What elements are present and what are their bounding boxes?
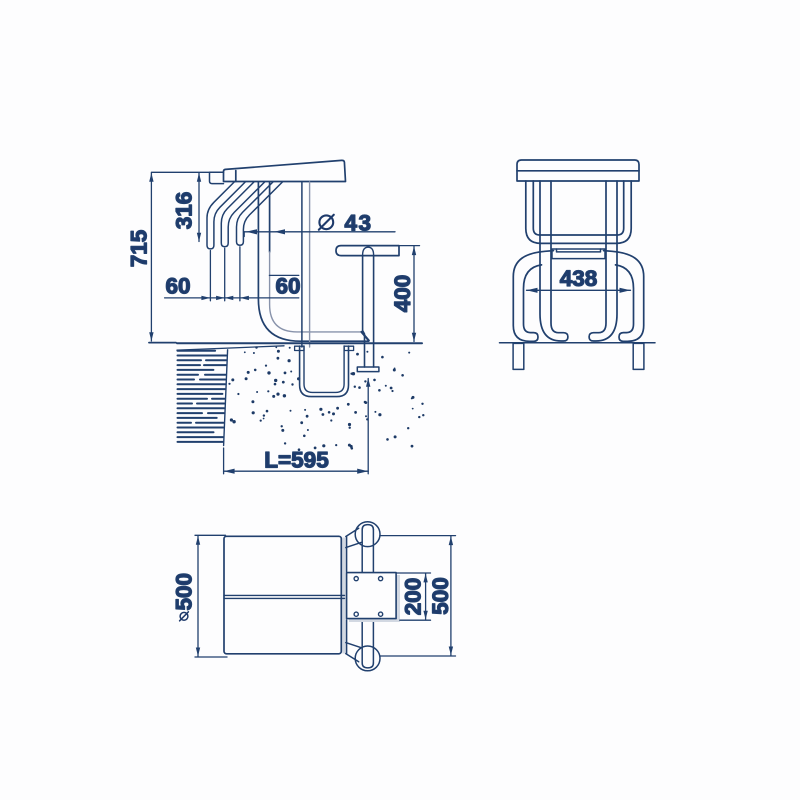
svg-text:500: 500 (172, 573, 197, 611)
svg-text:715: 715 (127, 230, 152, 268)
svg-text:316: 316 (172, 192, 197, 230)
svg-text:60: 60 (275, 274, 300, 299)
svg-text:200: 200 (401, 578, 426, 616)
svg-text:500: 500 (428, 577, 453, 615)
svg-text:L=595: L=595 (264, 447, 328, 472)
svg-text:43: 43 (344, 211, 372, 236)
svg-text:400: 400 (390, 275, 415, 313)
svg-text:438: 438 (560, 266, 598, 291)
svg-text:60: 60 (165, 274, 190, 299)
